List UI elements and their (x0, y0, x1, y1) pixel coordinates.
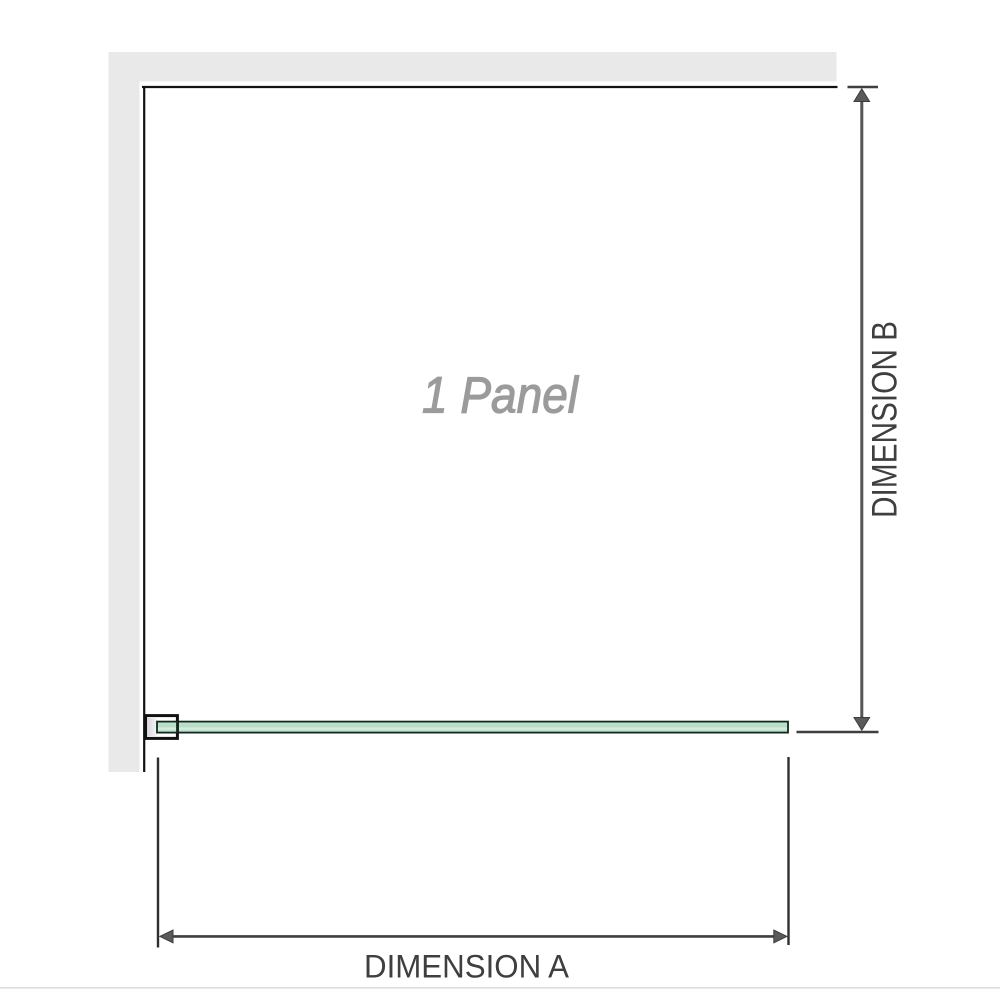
svg-text:1 Panel: 1 Panel (422, 367, 579, 424)
svg-text:DIMENSION A: DIMENSION A (364, 949, 570, 985)
svg-text:DIMENSION B: DIMENSION B (865, 321, 905, 518)
